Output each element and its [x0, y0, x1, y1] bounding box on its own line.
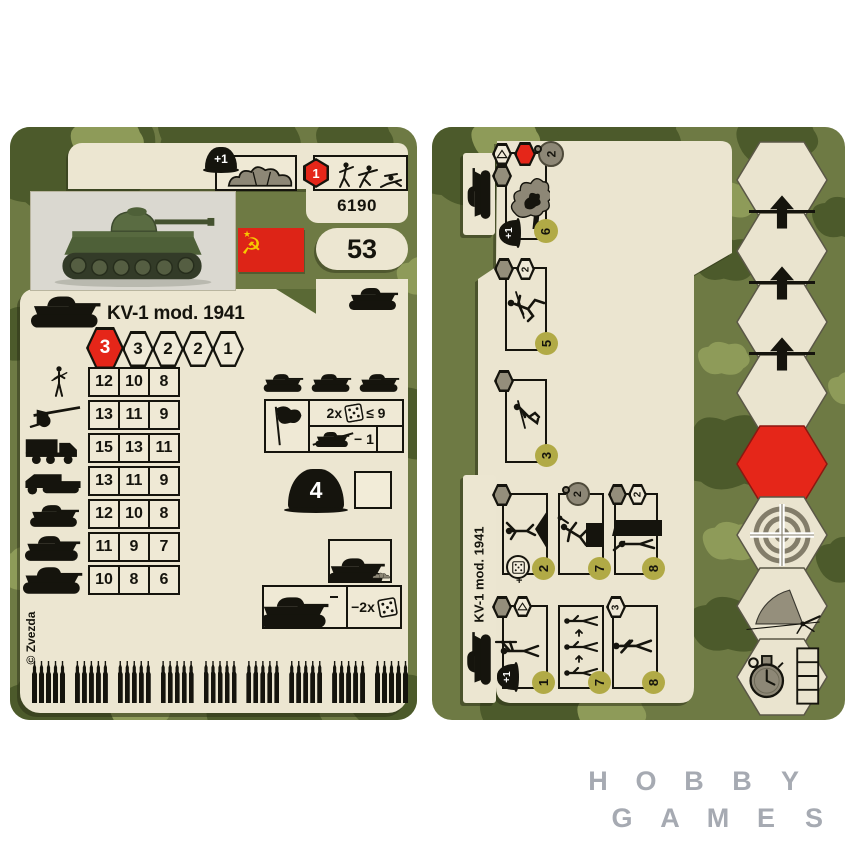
bullet-icon [260, 661, 265, 703]
medium-tank-icon [22, 535, 82, 562]
advance-arrow-icon [770, 266, 794, 300]
crouching-soldier-icon [511, 398, 543, 432]
bonus-value: +1 [502, 671, 513, 682]
bullet-icon [189, 661, 194, 703]
dice-penalty-cell: −2x [348, 587, 400, 627]
bullet-icon [289, 661, 294, 703]
attack-value: 12 [90, 369, 118, 395]
movement-value: 1 [223, 339, 232, 359]
ammo-group [204, 661, 237, 703]
platoon-strength-icons [262, 373, 400, 393]
bullet-icon [53, 661, 58, 703]
bullet-icon [389, 661, 394, 703]
bullet-icon [225, 661, 230, 703]
order-number: 2 [532, 557, 555, 580]
ammo-row [32, 655, 408, 703]
order-number: 3 [535, 444, 558, 467]
light-tank-icon [28, 504, 80, 528]
bullet-icon [211, 661, 216, 703]
order-number: 5 [535, 332, 558, 355]
ammo-group [75, 661, 108, 703]
attack-value: 9 [118, 534, 148, 560]
unit-title: KV-1 mod. 1941 [107, 303, 245, 325]
mini-marker-icon [562, 486, 570, 494]
bullet-icon [60, 661, 65, 703]
track-hex-target [736, 496, 828, 574]
bullet-icon [353, 661, 358, 703]
attack-value: 10 [118, 369, 148, 395]
bullet-icon [103, 661, 108, 703]
climbing-soldier-icon [501, 510, 547, 550]
bullet-icon [39, 661, 44, 703]
bullet-icon [232, 661, 237, 703]
die-bonus-icon: + [506, 555, 530, 579]
running-soldier-icon [506, 288, 548, 324]
order-number: 7 [588, 557, 611, 580]
track-hex-timer [736, 638, 828, 716]
return-fire-value: −2x [351, 599, 375, 615]
circle-badge: 2 [566, 482, 590, 506]
attack-row: 13 11 9 [88, 466, 180, 496]
flag-icon [271, 405, 303, 447]
kv1-model-image [31, 192, 235, 290]
ammo-group [289, 661, 322, 703]
ammo-group [332, 661, 365, 703]
unit-type-box [316, 279, 408, 315]
bullet-icon [139, 661, 144, 703]
bullet-icon [161, 661, 166, 703]
rubble-icon [372, 569, 390, 581]
track-hex-arc-fire [736, 567, 828, 645]
bullet-icon [317, 661, 322, 703]
bullet-icon [125, 661, 130, 703]
attack-value: 9 [148, 468, 178, 494]
attack-value: 8 [148, 501, 178, 527]
die-icon [376, 596, 398, 618]
penalty-value: − 1 [354, 431, 374, 447]
attack-value: 7 [148, 534, 178, 560]
tank-icon [310, 373, 352, 393]
bullet-icon [146, 661, 151, 703]
product-photo: 6190 ★ ☭ 53 +1 1 [0, 0, 850, 850]
ammo-group [32, 661, 65, 703]
target-icon [750, 504, 814, 566]
unit-class-box: 1 [313, 155, 408, 191]
bullet-icon [382, 661, 387, 703]
bullet-icon [218, 661, 223, 703]
ammo-group [118, 661, 151, 703]
badge-value: 3 [611, 604, 622, 610]
movement-value: 3 [100, 337, 111, 359]
flag-cell [266, 401, 310, 451]
ammo-group [375, 661, 408, 703]
movement-value: 2 [193, 339, 202, 359]
bullet-icon [360, 661, 365, 703]
bullet-icon [346, 661, 351, 703]
attack-value: 6 [148, 567, 178, 593]
tank-icon [358, 373, 400, 393]
infantry-squad-icon [336, 160, 404, 190]
product-code-box: 6190 [306, 189, 408, 223]
penalty-cell: − 1 [310, 427, 402, 451]
dice-test-cell: 2x ≤ 9 [310, 401, 402, 427]
attack-value: 11 [118, 402, 148, 428]
attack-row: 11 9 7 [88, 532, 180, 562]
attack-value: 13 [90, 468, 118, 494]
rally-rule-box: 2x ≤ 9 − 1 [264, 399, 404, 453]
truck-icon [24, 434, 84, 464]
order-number: 8 [642, 671, 665, 694]
bullet-icon [274, 661, 279, 703]
tab-title: KV-1 mod. 1941 [472, 514, 487, 636]
attack-value: 11 [90, 534, 118, 560]
product-code: 6190 [337, 196, 377, 216]
bullet-icon [375, 661, 380, 703]
bullet-icon [132, 661, 137, 703]
attack-value: 8 [118, 567, 148, 593]
attack-value: 11 [148, 435, 178, 461]
bullet-icon [253, 661, 258, 703]
movement-value: 3 [133, 339, 142, 359]
order-number: 1 [532, 671, 555, 694]
empty-cell [376, 427, 402, 451]
bullet-icon [46, 661, 51, 703]
attack-value: 10 [90, 567, 118, 593]
track-hex-advance [736, 354, 828, 432]
order-number: 7 [588, 671, 611, 694]
stopwatch-icon [742, 644, 822, 708]
bullet-icon [96, 661, 101, 703]
bullet-icon [267, 661, 272, 703]
infantry-icon [48, 365, 70, 399]
vaulting-soldier-icon [556, 512, 608, 554]
bullet-icon [118, 661, 123, 703]
advance-arrow-icon [770, 195, 794, 229]
tab-tank-icon [466, 631, 492, 687]
bullet-icon [89, 661, 94, 703]
attack-value: 12 [90, 501, 118, 527]
attack-row: 12 10 8 [88, 499, 180, 529]
bullet-icon [403, 661, 408, 703]
fire-arc-icon [742, 577, 826, 637]
die-icon [344, 403, 365, 424]
dice-multiplier: 2x [327, 405, 343, 421]
attack-row: 13 11 9 [88, 400, 180, 430]
bullet-icon [82, 661, 87, 703]
cover-bonus: +1 [214, 152, 228, 166]
advance-arrow-icon [770, 337, 794, 371]
mountain-icon [496, 149, 508, 159]
die-bonus-sign: + [516, 575, 522, 587]
bullet-icon [339, 661, 344, 703]
badge-value: 2 [520, 266, 531, 272]
soviet-flag: ★ ☭ [238, 228, 304, 272]
badge-value: 2 [572, 491, 584, 497]
attack-row: 12 10 8 [88, 367, 180, 397]
badge-value: 2 [544, 151, 558, 158]
attack-value: 11 [118, 468, 148, 494]
bullet-icon [168, 661, 173, 703]
unit-card-front: 6190 ★ ☭ 53 +1 1 [10, 127, 417, 720]
attack-row: 15 13 11 [88, 433, 180, 463]
tab-tank-icon [466, 167, 492, 221]
hammer-sickle-icon: ☭ [241, 233, 262, 260]
point-value: 53 [347, 234, 377, 265]
unit-card-back: KV-1 mod. 1941 2 +1 6 2 5 [432, 127, 845, 720]
points-pill: 53 [316, 228, 408, 270]
tank-icon [344, 287, 402, 311]
attack-value: 13 [118, 435, 148, 461]
attack-value: 15 [90, 435, 118, 461]
firing-tank-cell [264, 587, 348, 627]
halftrack-icon [22, 469, 84, 495]
bullet-icon [182, 661, 187, 703]
firing-tank-icon [264, 596, 330, 627]
order-number: 6 [534, 219, 558, 243]
ammo-group [246, 661, 279, 703]
at-gun-icon [26, 403, 84, 428]
ammo-group [161, 661, 194, 703]
attack-value: 10 [118, 501, 148, 527]
track-hex-halt [736, 425, 828, 503]
bullet-icon [204, 661, 209, 703]
attack-value: 9 [148, 402, 178, 428]
soldier-behind-cover-icon [610, 517, 664, 555]
aiming-soldier-icon [494, 631, 550, 663]
hull-down-box [328, 539, 392, 583]
circle-badge: 2 [538, 141, 564, 167]
order-number: 8 [642, 557, 665, 580]
bullet-icon [75, 661, 80, 703]
armor-marker-slot [354, 471, 392, 509]
mini-marker-icon [534, 145, 542, 153]
attack-value: 8 [148, 369, 178, 395]
attack-row: 10 8 6 [88, 565, 180, 595]
badge-value: 2 [632, 492, 643, 498]
unit-silhouette-icon [26, 295, 104, 329]
armor-value: 4 [310, 477, 323, 504]
model-photo [30, 191, 236, 291]
bullet-icon [246, 661, 251, 703]
attack-value: 13 [90, 402, 118, 428]
bullet-icon [175, 661, 180, 703]
bullet-icon [32, 661, 37, 703]
walking-soldier-icon [611, 632, 655, 662]
class-value: 1 [312, 166, 319, 181]
muzzle-flash-icon [330, 596, 338, 598]
mountain-icon [517, 602, 528, 611]
tank-icon [262, 373, 304, 393]
dice-threshold: ≤ 9 [366, 405, 385, 421]
return-fire-box: −2x [262, 585, 402, 629]
bullet-icon [303, 661, 308, 703]
bullet-icon [310, 661, 315, 703]
heavy-tank-icon [20, 566, 84, 595]
movement-value: 2 [163, 339, 172, 359]
bullet-icon [332, 661, 337, 703]
bonus-value: +1 [504, 227, 515, 238]
bullet-icon [296, 661, 301, 703]
cover-bonus-box: +1 [215, 155, 297, 191]
crossed-tank-icon [314, 431, 350, 448]
bullet-icon [396, 661, 401, 703]
